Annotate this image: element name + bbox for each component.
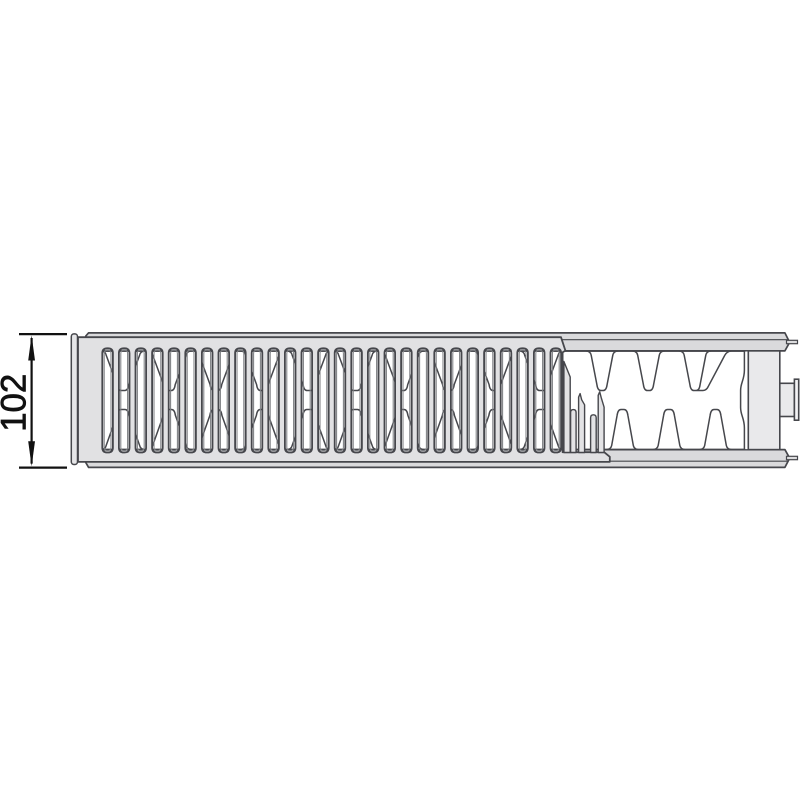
svg-text:102: 102 [0, 374, 33, 432]
